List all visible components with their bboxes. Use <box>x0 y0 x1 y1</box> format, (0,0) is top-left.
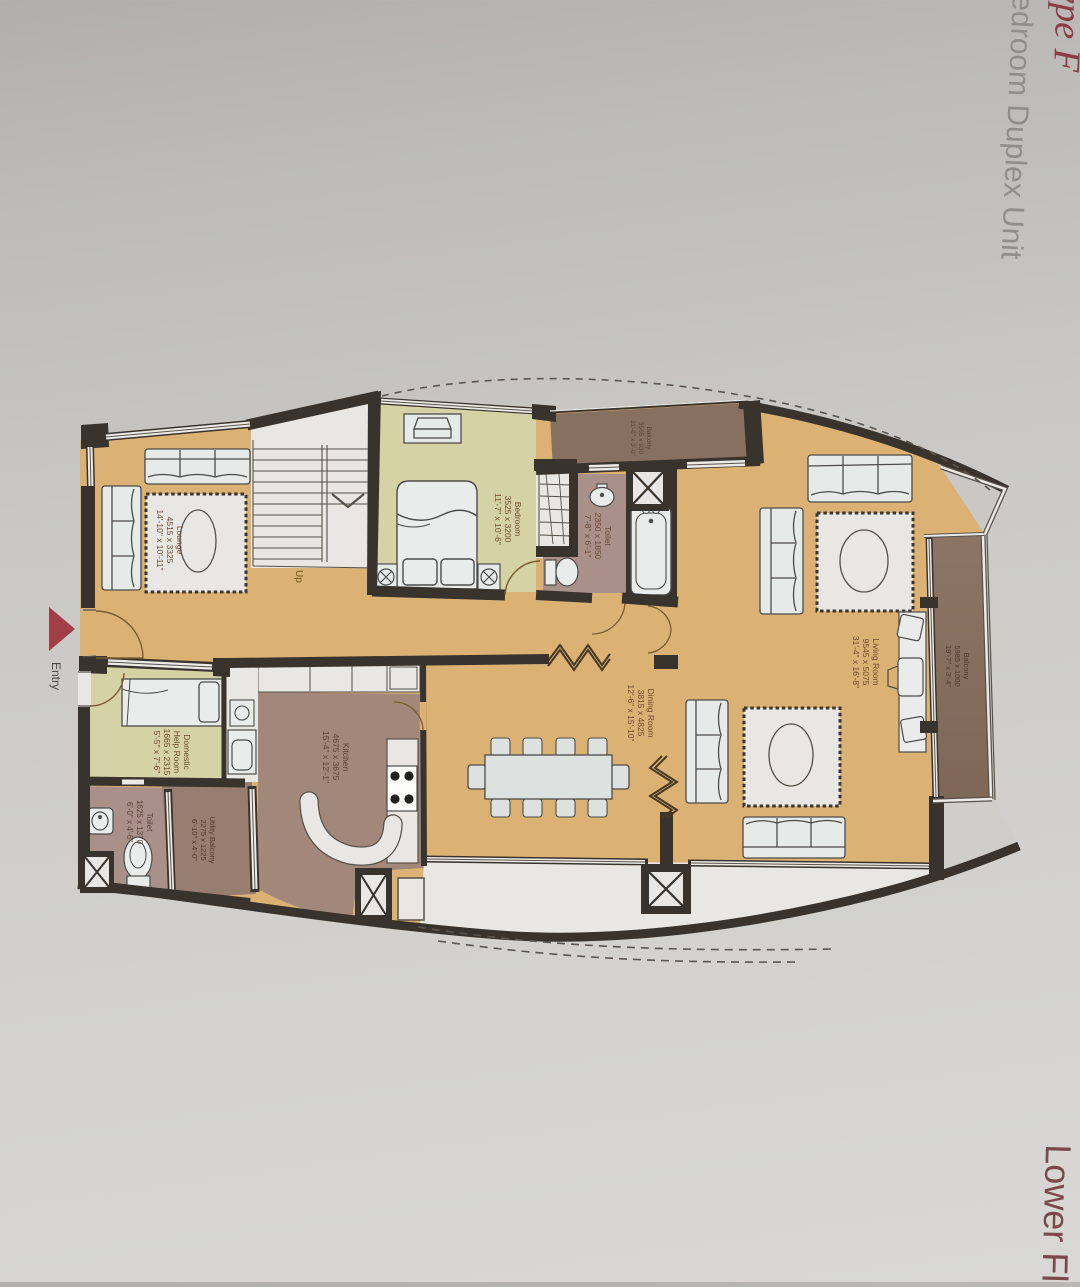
svg-text:5985 x 1000: 5985 x 1000 <box>953 645 962 686</box>
svg-text:1625 x 1370: 1625 x 1370 <box>135 800 144 845</box>
svg-text:2350 x 1850: 2350 x 1850 <box>593 513 603 560</box>
svg-text:Help Room: Help Room <box>172 731 182 774</box>
svg-text:edroom Duplex Unit: edroom Duplex Unit <box>994 0 1039 261</box>
svg-text:Utility Balcony: Utility Balcony <box>208 816 217 863</box>
svg-text:2275 x 1225: 2275 x 1225 <box>199 819 208 860</box>
svg-text:5'-5" x 7'-6": 5'-5" x 7'-6" <box>152 731 162 774</box>
svg-text:1665 x 2315: 1665 x 2315 <box>162 729 172 776</box>
svg-text:Lounge: Lounge <box>175 526 185 555</box>
svg-text:3565 x 930: 3565 x 930 <box>637 422 644 455</box>
svg-text:Toilet: Toilet <box>145 813 154 832</box>
svg-text:14'-10" x 10'-11": 14'-10" x 10'-11" <box>155 509 165 570</box>
svg-text:4675 x 3675: 4675 x 3675 <box>331 734 341 781</box>
svg-text:Living Room: Living Room <box>871 638 881 685</box>
svg-text:7'-8" x 6'-1": 7'-8" x 6'-1" <box>583 515 593 558</box>
svg-text:Lower Floor: Lower Floor <box>1033 1144 1079 1282</box>
svg-text:Balcony: Balcony <box>962 653 971 680</box>
svg-text:3525 x 3200: 3525 x 3200 <box>503 496 513 543</box>
svg-text:Entry: Entry <box>49 662 63 690</box>
svg-text:Toilet: Toilet <box>603 526 613 546</box>
svg-text:6'-0" x 4'-6": 6'-0" x 4'-6" <box>125 802 134 842</box>
svg-text:Domestic: Domestic <box>182 734 192 770</box>
svg-text:ype F: ype F <box>1045 0 1080 73</box>
svg-text:Bedroom: Bedroom <box>513 502 523 537</box>
svg-text:19'-7" x 3'-4": 19'-7" x 3'-4" <box>944 645 953 687</box>
svg-text:Dining Room: Dining Room <box>646 688 656 737</box>
svg-text:3815 x 4825: 3815 x 4825 <box>636 690 646 737</box>
svg-text:Balcony: Balcony <box>645 426 652 450</box>
svg-text:12'-6" x 15'-10": 12'-6" x 15'-10" <box>626 684 636 741</box>
svg-text:31'-4" x 16'-8": 31'-4" x 16'-8" <box>851 636 861 688</box>
svg-text:Kitchen: Kitchen <box>341 743 351 772</box>
svg-text:9545 x 5075: 9545 x 5075 <box>861 639 871 686</box>
svg-text:Up: Up <box>293 570 304 583</box>
svg-text:11'-8" x 3'-0": 11'-8" x 3'-0" <box>629 420 636 457</box>
svg-text:4515 x 3325: 4515 x 3325 <box>165 517 175 564</box>
svg-text:15'-4" x 12'-1": 15'-4" x 12'-1" <box>321 731 331 783</box>
svg-text:6'-10" x 4'-0": 6'-10" x 4'-0" <box>190 819 199 861</box>
svg-text:11'-7" x 10'-6": 11'-7" x 10'-6" <box>493 493 503 545</box>
